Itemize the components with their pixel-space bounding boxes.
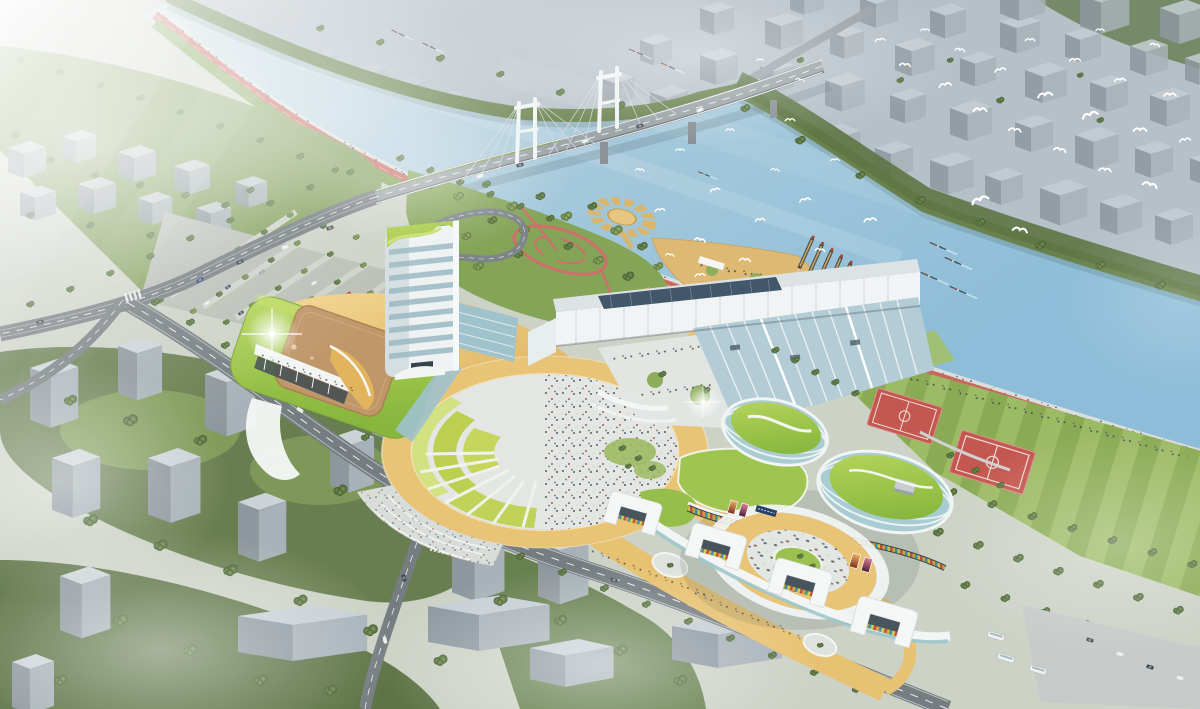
atmosphere-overlays [0, 0, 1200, 709]
aerial-render-image [0, 0, 1200, 709]
render-canvas [0, 0, 1200, 709]
